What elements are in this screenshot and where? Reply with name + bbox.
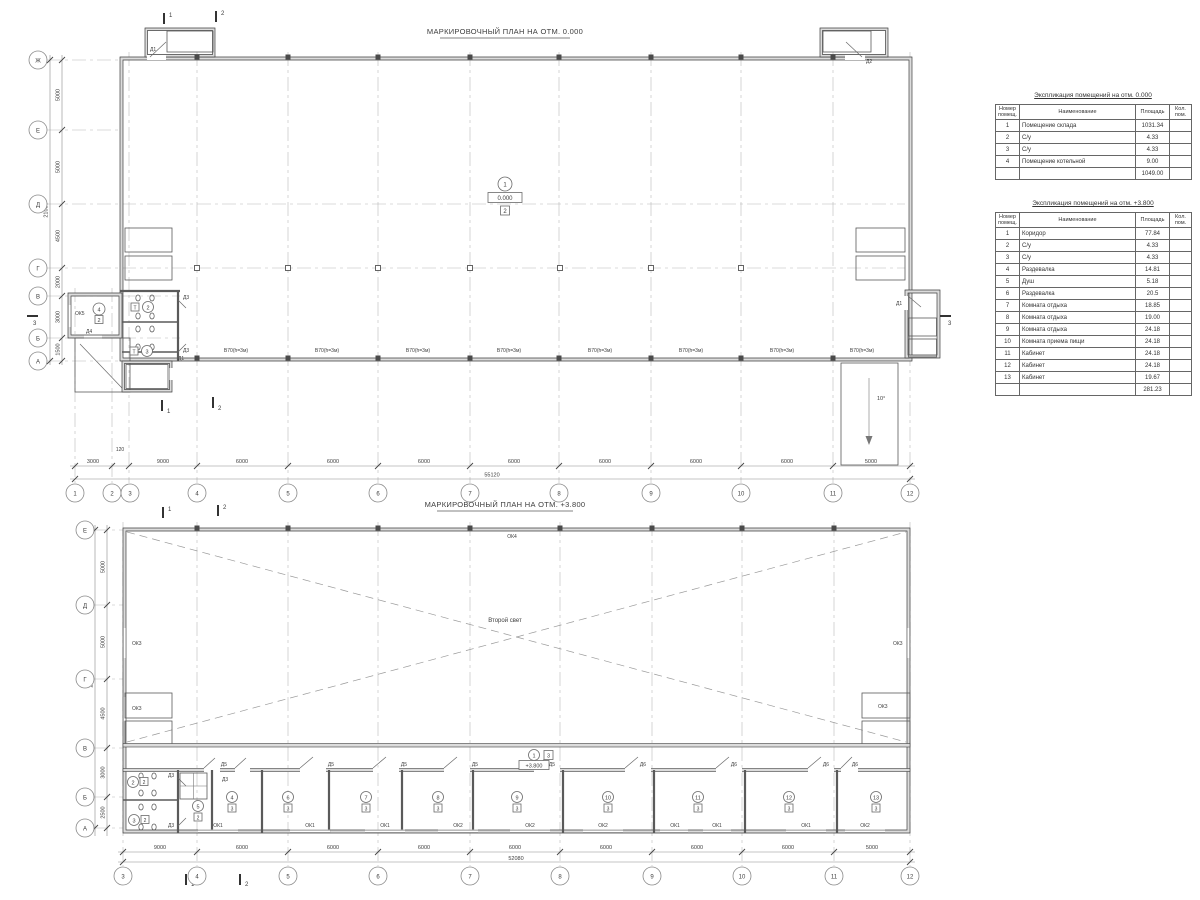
floor-type: 3 (437, 807, 440, 813)
floor-type: 2 (144, 818, 147, 824)
plan2-axis-circles-left: Е Д Г В Б А (76, 521, 94, 837)
axis-label: Д (83, 604, 87, 610)
cell-count (1170, 240, 1192, 252)
window-label: ОК2 (860, 823, 870, 829)
table-row: 11 Кабинет 24.18 (996, 348, 1192, 360)
table-row: 2 С/у 4.33 (996, 240, 1192, 252)
cell-count (1170, 228, 1192, 240)
axis-label: 11 (830, 492, 837, 498)
dim-label: 6000 (327, 459, 339, 465)
dim-label: 6000 (327, 845, 339, 851)
door-label-d1: Д1 (178, 356, 184, 362)
door-label-d6: Д6 (640, 762, 646, 768)
room-number: 4 (97, 308, 100, 314)
dim-label: 3000 (101, 766, 107, 778)
door-label-d5: Д5 (472, 762, 478, 768)
floor-type: 2 (97, 318, 100, 324)
floor-type: 2 (143, 780, 146, 786)
window-label-ok4: ОК4 (507, 534, 517, 540)
window-label: ОК1 (670, 823, 680, 829)
drawing-sheet: МАРКИРОВОЧНЫЙ ПЛАН НА ОТМ. 0.000 (0, 0, 1200, 900)
table-row: 1 Помещение склада 1031.34 (996, 120, 1192, 132)
plan2-grid-horizontal (94, 530, 126, 828)
table-row: 8 Комната отдыха 19.00 (996, 312, 1192, 324)
section-mark-2: 2 (223, 505, 227, 511)
dim-label: 9000 (154, 845, 166, 851)
plan2-room-tags: 6 3 7 3 8 3 9 3 10 3 11 3 12 3 13 3 (283, 792, 882, 813)
table-row: 3 С/у 4.33 (996, 252, 1192, 264)
dim-label: 5000 (865, 459, 877, 465)
window-label: ОК1 (712, 823, 722, 829)
door-label-d3: Д3 (183, 295, 189, 301)
axis-label: Б (83, 796, 87, 802)
plan1-dimensions-left: 5000 5000 4500 2000 3000 1500 21000 (44, 55, 66, 365)
cell-number: 4 (996, 156, 1020, 168)
plan1-vestibule-right: Д1 (896, 290, 940, 358)
table-row: 12 Кабинет 24.18 (996, 360, 1192, 372)
window-label: ОК2 (453, 823, 463, 829)
dim-label: 6000 (236, 845, 248, 851)
cell-area: 9.00 (1136, 156, 1170, 168)
cell-count (1170, 252, 1192, 264)
dim-label: 6000 (509, 845, 521, 851)
cell-number: 5 (996, 276, 1020, 288)
cell-name: Помещение склада (1020, 120, 1136, 132)
cell-number: 3 (996, 144, 1020, 156)
dim-label: 6000 (691, 845, 703, 851)
cell-count (1170, 336, 1192, 348)
window-label: ОК1 (213, 823, 223, 829)
cell-number: 13 (996, 372, 1020, 384)
plan1-ramp: 10° (841, 363, 898, 465)
cell-count (1170, 144, 1192, 156)
room-number: 13 (873, 796, 879, 802)
cell-number: 1 (996, 120, 1020, 132)
window-label-ok3: ОК3 (878, 704, 888, 710)
cell-name: Кабинет (1020, 360, 1136, 372)
col-header: Площадь (1136, 213, 1170, 228)
cell-area: 1031.34 (1136, 120, 1170, 132)
door-label-d5: Д5 (401, 762, 407, 768)
dim-label: 6000 (508, 459, 520, 465)
door-label-d6: Д6 (823, 762, 829, 768)
plan1-grid-vertical (75, 52, 910, 483)
cell-count (1170, 312, 1192, 324)
cell-name: Комната отдыха (1020, 300, 1136, 312)
dim-label: 4500 (56, 230, 62, 242)
gate-label: В70(h=3м) (497, 348, 521, 354)
axis-label: 12 (907, 875, 914, 881)
plan2-second-light-area: Второй свет ОК4 (127, 532, 906, 742)
cell-name: Коридор (1020, 228, 1136, 240)
plan1: МАРКИРОВОЧНЫЙ ПЛАН НА ОТМ. 0.000 (27, 11, 952, 502)
gate-label: В70(h=3м) (406, 348, 430, 354)
plan1-title: МАРКИРОВОЧНЫЙ ПЛАН НА ОТМ. 0.000 (427, 27, 583, 36)
door-label-d4: Д4 (86, 329, 92, 335)
cell-name: Комната отдыха (1020, 324, 1136, 336)
cell-area: 24.18 (1136, 324, 1170, 336)
window-label: ОК2 (598, 823, 608, 829)
cell-name: Раздевалка (1020, 264, 1136, 276)
plan2-dimensions-bottom: 9000 6000 6000 6000 6000 6000 6000 6000 … (118, 845, 915, 865)
window-label-ok3: ОК3 (132, 641, 142, 647)
window-label: ОК1 (380, 823, 390, 829)
cell-number: 3 (996, 252, 1020, 264)
window-label-ok3: ОК3 (893, 641, 903, 647)
plan1-door-gap-d1-top (147, 55, 166, 60)
room-number: 4 (230, 796, 233, 802)
dim-label: 5000 (101, 636, 107, 648)
cell-number: 12 (996, 360, 1020, 372)
axis-label: А (83, 827, 87, 833)
table-row: 4 Помещение котельной 9.00 (996, 156, 1192, 168)
dim-label: 6000 (236, 459, 248, 465)
plan2-stair-right (862, 693, 910, 746)
plan1-grid-horizontal (47, 60, 905, 361)
cell-number: 8 (996, 312, 1020, 324)
cell-area: 24.18 (1136, 336, 1170, 348)
floor-type: 3 (697, 807, 700, 813)
cell-area: 19.67 (1136, 372, 1170, 384)
cell-name: С/у (1020, 144, 1136, 156)
plan1-stair-top-right (823, 31, 871, 52)
plan1-hall-tag: 1 0.000 2 (488, 177, 522, 215)
door-label-d5: Д5 (549, 762, 555, 768)
plan1-exterior-wall (120, 57, 912, 361)
window-label: ОК1 (305, 823, 315, 829)
dim-label: 6000 (781, 459, 793, 465)
cell-area: 18.85 (1136, 300, 1170, 312)
cell-count (1170, 264, 1192, 276)
axis-label: Ж (35, 59, 41, 65)
floor-type: 3 (287, 807, 290, 813)
cell-name: Комната отдыха (1020, 312, 1136, 324)
cell-number: 2 (996, 132, 1020, 144)
room-number: 2 (146, 306, 149, 312)
plan2-title: МАРКИРОВОЧНЫЙ ПЛАН НА ОТМ. +3.800 (425, 500, 586, 509)
plan1-section-marks: 1 2 1 2 3 3 (27, 11, 952, 415)
dim-label: 4500 (101, 707, 107, 719)
dim-label: 3000 (56, 311, 62, 323)
gate-label: В70(h=3м) (679, 348, 703, 354)
door-label-d6: Д6 (852, 762, 858, 768)
elevation-mark: +3.800 (526, 764, 543, 770)
door-label-d3: Д3 (183, 348, 189, 354)
dim-label: 6000 (690, 459, 702, 465)
door-label-d1: Д1 (896, 301, 902, 307)
window-label-ok5: ОК5 (75, 311, 85, 317)
cell-area: 24.18 (1136, 348, 1170, 360)
floor-type: 3 (788, 807, 791, 813)
plan1-gate-labels: В70(h=3м) В70(h=3м) В70(h=3м) В70(h=3м) … (224, 348, 874, 354)
axis-label: 10 (739, 875, 746, 881)
cell-count (1170, 360, 1192, 372)
gate-label: В70(h=3м) (850, 348, 874, 354)
table-total-row: 1049.00 (996, 168, 1192, 180)
col-header: Номер помещ. (996, 105, 1020, 120)
floor-type: Т (132, 350, 135, 356)
plan2-shower-room: 5 2 4 3 (180, 773, 238, 822)
room-number: 10 (605, 796, 611, 802)
room-number: 3 (145, 350, 148, 356)
section-mark-1: 1 (167, 409, 171, 415)
plan1-stair-right (856, 228, 905, 280)
cell-number: 11 (996, 348, 1020, 360)
second-light-label: Второй свет (488, 617, 522, 624)
plan2-corridor-north-wall (123, 744, 910, 748)
room-number: 7 (364, 796, 367, 802)
dim-total: 52080 (508, 856, 523, 862)
cell-total: 1049.00 (1136, 168, 1170, 180)
axis-label: Е (36, 129, 40, 135)
door-label-d3: Д3 (222, 777, 228, 783)
table-title: Экспликация помещений на отм. +3.800 (995, 200, 1191, 207)
cell-number: 9 (996, 324, 1020, 336)
room-number: 2 (131, 781, 134, 787)
cell-name: Душ (1020, 276, 1136, 288)
plan2: МАРКИРОВОЧНЫЙ ПЛАН НА ОТМ. +3.800 (76, 500, 919, 888)
axis-label: А (36, 360, 40, 366)
floor-type: 3 (231, 807, 234, 813)
col-header: Номер помещ. (996, 213, 1020, 228)
dim-label: 5000 (56, 89, 62, 101)
axis-label: Е (83, 529, 87, 535)
floor-type: 3 (516, 807, 519, 813)
plan2-exterior-wall (123, 528, 910, 833)
cell-number: 7 (996, 300, 1020, 312)
dim-label: 5000 (56, 161, 62, 173)
cell-count (1170, 288, 1192, 300)
cell-name: Кабинет (1020, 372, 1136, 384)
cell-area: 24.18 (1136, 360, 1170, 372)
explication-table-1: Экспликация помещений на отм. +3.800 Ном… (995, 200, 1191, 396)
dim-label: 2500 (101, 806, 107, 818)
floor-type: 3 (365, 807, 368, 813)
table-row: 7 Комната отдыха 18.85 (996, 300, 1192, 312)
plan1-wall-pilasters (195, 55, 836, 361)
axis-label: Д (36, 203, 40, 209)
explication-table-0: Экспликация помещений на отм. 0.000 Номе… (995, 92, 1191, 180)
dim-label: 6000 (599, 459, 611, 465)
dim-label: 3000 (87, 459, 99, 465)
table-title: Экспликация помещений на отм. 0.000 (995, 92, 1191, 99)
plan1-vestibule-top-right (820, 28, 888, 57)
floor-type: 3 (875, 807, 878, 813)
table-row: 5 Душ 5.18 (996, 276, 1192, 288)
section-mark-1: 1 (168, 507, 172, 513)
cell-area: 4.33 (1136, 132, 1170, 144)
room-number: 8 (436, 796, 439, 802)
cell-area: 14.81 (1136, 264, 1170, 276)
cell-count (1170, 348, 1192, 360)
table-header-row: Номер помещ. Наименование Площадь Кол. п… (996, 213, 1192, 228)
window-label-ok3: ОК3 (132, 706, 142, 712)
col-header: Площадь (1136, 105, 1170, 120)
plan1-axis-circles-left: Ж Е Д Г В Б А (29, 51, 47, 370)
axis-label: В (83, 747, 87, 753)
dim-total: 55120 (484, 473, 499, 479)
col-header: Наименование (1020, 213, 1136, 228)
ramp-slope-label: 10° (877, 396, 885, 402)
section-mark-2: 2 (245, 882, 249, 888)
cell-area: 77.84 (1136, 228, 1170, 240)
col-header: Кол. пом. (1170, 213, 1192, 228)
section-mark-2: 2 (221, 11, 225, 17)
cell-area: 20.5 (1136, 288, 1170, 300)
axis-label: 11 (831, 875, 838, 881)
floor-type: 3 (607, 807, 610, 813)
dim-label: 120 (116, 447, 125, 453)
table-row: 9 Комната отдыха 24.18 (996, 324, 1192, 336)
dim-label: 6000 (418, 459, 430, 465)
dim-label: 6000 (418, 845, 430, 851)
floor-type: 2 (197, 816, 200, 822)
gate-label: В70(h=3м) (224, 348, 248, 354)
table-row: 4 Раздевалка 14.81 (996, 264, 1192, 276)
cell-area: 5.18 (1136, 276, 1170, 288)
cell-number: 6 (996, 288, 1020, 300)
window-ok5 (68, 305, 71, 327)
elevation-mark: 0.000 (497, 196, 513, 202)
plan1-door-label-d1-top: Д1 (150, 47, 156, 53)
plan1-door-gap-d2 (845, 55, 865, 60)
cell-name: Комната приема пищи (1020, 336, 1136, 348)
cell-name: Раздевалка (1020, 288, 1136, 300)
cell-name: С/у (1020, 132, 1136, 144)
dim-label: 9000 (157, 459, 169, 465)
cell-count (1170, 132, 1192, 144)
dim-label: 6000 (600, 845, 612, 851)
section-mark-3: 3 (33, 321, 37, 327)
dim-label: 1500 (56, 343, 62, 355)
col-header: Кол. пом. (1170, 105, 1192, 120)
cell-area: 4.33 (1136, 240, 1170, 252)
section-mark-2: 2 (218, 406, 222, 412)
dim-label: 5000 (866, 845, 878, 851)
table-row: 3 С/у 4.33 (996, 144, 1192, 156)
plan2-grid-vertical (123, 522, 910, 866)
cell-count (1170, 276, 1192, 288)
cell-number: 10 (996, 336, 1020, 348)
door-label-d5: Д5 (328, 762, 334, 768)
cell-count (1170, 324, 1192, 336)
cell-number: 4 (996, 264, 1020, 276)
plan2-axis-circles-bottom: 3 4 5 6 7 8 9 10 11 12 (114, 867, 919, 885)
door-label-d6: Д6 (731, 762, 737, 768)
cell-name: С/у (1020, 252, 1136, 264)
col-header: Наименование (1020, 105, 1136, 120)
table-row: 1 Коридор 77.84 (996, 228, 1192, 240)
cell-area: 19.00 (1136, 312, 1170, 324)
cell-count (1170, 156, 1192, 168)
cell-count (1170, 120, 1192, 132)
room-number: 5 (196, 805, 199, 811)
room-number: 6 (286, 796, 289, 802)
plan2-stair-left (125, 693, 172, 746)
room-number: 11 (695, 796, 701, 802)
dim-label: 5000 (101, 561, 107, 573)
table-total-row: 281.23 (996, 384, 1192, 396)
cell-total: 281.23 (1136, 384, 1170, 396)
door-label-d3: Д3 (168, 773, 174, 779)
dim-label: 6000 (782, 845, 794, 851)
cell-area: 4.33 (1136, 252, 1170, 264)
plan1-stair-bottom-left (125, 228, 172, 280)
gate-label: В70(h=3м) (588, 348, 612, 354)
cell-number: 1 (996, 228, 1020, 240)
window-label: ОК1 (801, 823, 811, 829)
axis-label: 10 (738, 492, 745, 498)
cell-name: С/у (1020, 240, 1136, 252)
cell-name: Помещение котельной (1020, 156, 1136, 168)
gate-label: В70(h=3м) (315, 348, 339, 354)
room-number: 9 (515, 796, 518, 802)
axis-label: В (36, 295, 40, 301)
plan1-stair-bottom-protrusion: Д1 (122, 356, 184, 392)
cell-number: 2 (996, 240, 1020, 252)
cell-count (1170, 372, 1192, 384)
dim-label: 2000 (56, 276, 62, 288)
gate-label: В70(h=3м) (770, 348, 794, 354)
table-row: 10 Комната приема пищи 24.18 (996, 336, 1192, 348)
window-label: ОК2 (525, 823, 535, 829)
table-header-row: Номер помещ. Наименование Площадь Кол. п… (996, 105, 1192, 120)
plan1-stair-top-left (167, 31, 213, 52)
room-number: 1 (532, 754, 535, 760)
plan1-door-label-d2: Д2 (866, 59, 872, 65)
table-row: 13 Кабинет 19.67 (996, 372, 1192, 384)
cell-name: Кабинет (1020, 348, 1136, 360)
floor-type: 3 (547, 754, 550, 760)
cell-count (1170, 300, 1192, 312)
door-label-d5: Д5 (221, 762, 227, 768)
table-row: 2 С/у 4.33 (996, 132, 1192, 144)
axis-label: Б (36, 337, 40, 343)
room-number: 3 (132, 819, 135, 825)
section-mark-3: 3 (948, 321, 952, 327)
floor-type: Т (133, 306, 136, 312)
table-row: 6 Раздевалка 20.5 (996, 288, 1192, 300)
plan1-toilet-block: Т 2 Т 3 Д3 Д3 (120, 291, 189, 361)
axis-label: 12 (907, 492, 914, 498)
door-label-d3: Д3 (168, 823, 174, 829)
section-mark-1: 1 (169, 13, 173, 19)
cell-area: 4.33 (1136, 144, 1170, 156)
plan2-side-windows: ОК3 ОК3 ОК3 ОК3 (123, 628, 909, 721)
plan2-corridor-tag: 1 3 +3.800 (519, 750, 553, 770)
room-number: 12 (786, 796, 792, 802)
